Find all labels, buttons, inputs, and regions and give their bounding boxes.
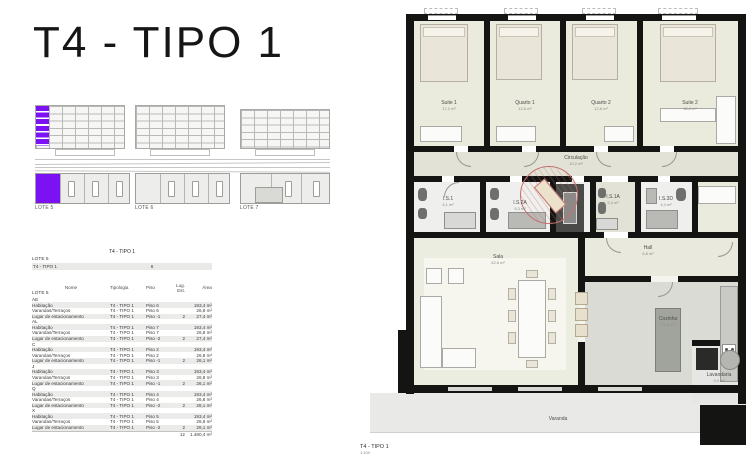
sink bbox=[418, 208, 427, 219]
table-cell: Habitação bbox=[32, 369, 110, 374]
table-cell: T4 - TIPO 1 bbox=[110, 353, 146, 358]
chair bbox=[526, 360, 538, 368]
revision-stamp-icon bbox=[520, 166, 578, 224]
table-cell: 27,4 m² bbox=[188, 336, 212, 341]
table-cell: T4 - TIPO 1 bbox=[110, 375, 146, 380]
chair bbox=[548, 310, 556, 322]
table-cell: T4 - TIPO 1 bbox=[110, 392, 146, 397]
table-cell: Lugar de estacionamento bbox=[32, 403, 110, 408]
wardrobe bbox=[420, 126, 462, 142]
cabinet bbox=[575, 324, 588, 337]
table-cell: 193,4 m² bbox=[188, 369, 212, 374]
table-cell: 193,4 m² bbox=[188, 347, 212, 352]
table-cell: 26,1 m² bbox=[188, 358, 212, 363]
table-cell: Piso 6 bbox=[146, 303, 168, 308]
window bbox=[508, 15, 536, 20]
shower bbox=[646, 210, 678, 229]
table-cell: Habitação bbox=[32, 325, 110, 330]
table-cell: T4 - TIPO 1 bbox=[110, 358, 146, 363]
table-cell: 193,4 m² bbox=[188, 392, 212, 397]
dining-table bbox=[518, 280, 546, 358]
col-header-lug-est: Lug. Est. bbox=[168, 283, 188, 293]
room-label-suite-1: Suite 117,2 m² bbox=[441, 100, 457, 111]
table-cell: T4 - TIPO 1 bbox=[110, 325, 146, 330]
table-cell: Q bbox=[32, 386, 110, 391]
bathtub bbox=[444, 212, 476, 229]
table-cell: T4 - TIPO 1 bbox=[110, 403, 146, 408]
plan-caption: T4 - TIPO 1 1:100 bbox=[360, 444, 389, 455]
toilet bbox=[418, 188, 427, 201]
table-cell: 2 bbox=[168, 336, 188, 341]
plan-scale: 1:100 bbox=[360, 450, 389, 455]
door-opening bbox=[442, 176, 454, 182]
table-cell: Piso -2 bbox=[146, 336, 168, 341]
floor-plan: Suite 117,2 m² Quarto 112,6 m² Quarto 21… bbox=[358, 8, 750, 454]
cabinet bbox=[575, 308, 588, 321]
table-cell: Habitação bbox=[32, 392, 110, 397]
highlighted-unit-column bbox=[36, 106, 49, 146]
balcony-floor bbox=[370, 393, 746, 433]
table-cell: 12 bbox=[168, 432, 188, 437]
table-cell: Varandas/Terraços bbox=[32, 397, 110, 402]
balcony-corner-block bbox=[700, 405, 746, 445]
wall-southwest-pier bbox=[398, 330, 414, 393]
table-cell: Piso 4 bbox=[146, 392, 168, 397]
col-header-tipologia: Tipologia bbox=[110, 285, 146, 290]
wardrobe bbox=[698, 186, 736, 204]
col-header-piso: Piso bbox=[146, 285, 168, 290]
area-table: T4 - TIPO 1 LOTE 5 T4 - TIPO 1 6 Nome Ti… bbox=[32, 249, 212, 438]
table-cell: Piso 3 bbox=[146, 375, 168, 380]
table-cell: Piso 2 bbox=[146, 353, 168, 358]
table-cell: X bbox=[32, 408, 110, 413]
chair bbox=[508, 332, 516, 344]
table-cell: Piso 7 bbox=[146, 330, 168, 335]
ground-floor-2 bbox=[150, 149, 210, 156]
pouf bbox=[426, 268, 442, 284]
table-cell: 2 bbox=[168, 314, 188, 319]
sink bbox=[598, 188, 606, 198]
table-cell: 193,4 m² bbox=[188, 414, 212, 419]
table-cell: Habitação bbox=[32, 347, 110, 352]
chair bbox=[526, 270, 538, 278]
table-cell: 26,8 m² bbox=[188, 308, 212, 313]
table-cell: T4 - TIPO 1 bbox=[110, 419, 146, 424]
area-table-rows: AEHabitaçãoT4 - TIPO 1Piso 6193,4 m²Vara… bbox=[32, 297, 212, 438]
wall-bedroom-divider bbox=[484, 21, 490, 146]
highlighted-unit bbox=[36, 174, 60, 203]
road-line bbox=[35, 167, 330, 168]
window bbox=[662, 15, 696, 20]
table-header-row: Nome Tipologia Piso Lug. Est. Área bbox=[32, 284, 212, 291]
table-cell: Habitação bbox=[32, 414, 110, 419]
bed bbox=[660, 24, 716, 82]
table-cell: 26,8 m² bbox=[188, 375, 212, 380]
table-cell: T4 - TIPO 1 bbox=[110, 347, 146, 352]
wall-bedroom-divider bbox=[560, 21, 566, 146]
table-cell: T4 - TIPO 1 bbox=[110, 303, 146, 308]
table-cell: T4 - TIPO 1 bbox=[110, 414, 146, 419]
road-line bbox=[35, 159, 330, 160]
chair bbox=[548, 332, 556, 344]
building-elevation-2 bbox=[135, 105, 225, 149]
table-cell: Lugar de estacionamento bbox=[32, 336, 110, 341]
toilet bbox=[598, 202, 606, 214]
window bbox=[428, 15, 456, 20]
door-opening bbox=[658, 176, 670, 182]
table-cell: 26,1 m² bbox=[188, 425, 212, 430]
room-label-is1a: I.S.1A2,4 m² bbox=[606, 194, 620, 205]
table-cell: Piso -1 bbox=[146, 314, 168, 319]
table-cell: Varandas/Terraços bbox=[32, 353, 110, 358]
table-cell: Lugar de estacionamento bbox=[32, 358, 110, 363]
table-cell: 193,4 m² bbox=[188, 303, 212, 308]
chair bbox=[508, 310, 516, 322]
area-row: Lugar de estacionamentoT4 - TIPO 1Piso -… bbox=[32, 425, 212, 431]
sliding-door bbox=[598, 387, 642, 391]
lot-plan-7 bbox=[240, 173, 330, 204]
page-title: T4 - TIPO 1 bbox=[33, 18, 284, 68]
wall-bath-divider bbox=[635, 182, 641, 232]
room-label-suite-2: Suite 218,4 m² bbox=[682, 100, 698, 111]
table-cell: T4 - TIPO 1 bbox=[110, 330, 146, 335]
room-label-quarto-2: Quarto 212,6 m² bbox=[591, 100, 610, 111]
table-cell: T4 - TIPO 1 bbox=[110, 336, 146, 341]
table-cell: Piso 6 bbox=[146, 308, 168, 313]
laundry-counter bbox=[696, 348, 718, 370]
table-cell: Varandas/Terraços bbox=[32, 419, 110, 424]
washing-machine-icon bbox=[720, 350, 740, 370]
table-cell: 26,8 m² bbox=[188, 397, 212, 402]
wall-bath-divider bbox=[480, 182, 486, 232]
room-label-quarto-1: Quarto 112,6 m² bbox=[515, 100, 534, 111]
table-cell: Lugar de estacionamento bbox=[32, 314, 110, 319]
lot-plan-6 bbox=[135, 173, 230, 204]
table-cell: Varandas/Terraços bbox=[32, 375, 110, 380]
building-elevation-3 bbox=[240, 109, 330, 149]
bed bbox=[420, 24, 468, 82]
table-cell: Habitação bbox=[32, 303, 110, 308]
sofa-chaise bbox=[442, 348, 476, 368]
shower bbox=[596, 218, 618, 230]
table-cell: T4 - TIPO 1 bbox=[110, 425, 146, 430]
lot-label-7: LOTE 7 bbox=[240, 205, 258, 211]
sliding-door bbox=[518, 387, 562, 391]
table-cell: Piso -2 bbox=[146, 425, 168, 430]
col-header-area: Área bbox=[188, 285, 212, 290]
chair bbox=[508, 288, 516, 300]
wall-living-kitchen bbox=[578, 238, 585, 294]
table-cell: 27,4 m² bbox=[188, 314, 212, 319]
table-cell: AL bbox=[32, 319, 110, 324]
ground-floor-1 bbox=[55, 149, 115, 156]
table-cell: Varandas/Terraços bbox=[32, 330, 110, 335]
table-cell: 2 bbox=[168, 425, 188, 430]
door-opening bbox=[510, 176, 522, 182]
table-cell: Piso -2 bbox=[146, 403, 168, 408]
summary-count: 6 bbox=[142, 264, 162, 269]
room-label-is3d: I.S.3D4,4 m² bbox=[659, 196, 673, 207]
sink bbox=[490, 208, 499, 220]
pouf bbox=[448, 268, 464, 284]
table-cell: Piso 2 bbox=[146, 347, 168, 352]
toilet bbox=[676, 188, 686, 201]
table-cell: Piso 3 bbox=[146, 369, 168, 374]
table-cell: 2 bbox=[168, 381, 188, 386]
corridor-opening bbox=[602, 176, 628, 182]
road-line bbox=[35, 162, 330, 165]
table-cell: J bbox=[32, 364, 110, 369]
room-label-is1: I.S.14,1 m² bbox=[442, 196, 453, 207]
lot-plan-5 bbox=[35, 173, 130, 204]
table-cell: T4 - TIPO 1 bbox=[110, 369, 146, 374]
table-cell: 2 bbox=[168, 403, 188, 408]
table-cell: AE bbox=[32, 297, 110, 302]
table-cell: Piso 4 bbox=[146, 397, 168, 402]
table-cell: 193,4 m² bbox=[188, 325, 212, 330]
table-cell: Varandas/Terraços bbox=[32, 308, 110, 313]
room-label-hall: Hall6,8 m² bbox=[642, 245, 653, 256]
bed bbox=[496, 24, 542, 80]
wall-east-laundry bbox=[738, 340, 746, 404]
table-cell: Piso 5 bbox=[146, 419, 168, 424]
table-cell: Lugar de estacionamento bbox=[32, 381, 110, 386]
lot-label-5: LOTE 5 bbox=[35, 205, 53, 211]
room-label-circulacao: Circulação10,2 m² bbox=[564, 155, 588, 166]
window bbox=[586, 15, 614, 20]
table-cell: Lugar de estacionamento bbox=[32, 425, 110, 430]
table-cell: 26,8 m² bbox=[188, 419, 212, 424]
lot-label-6: LOTE 6 bbox=[135, 205, 153, 211]
cabinet bbox=[575, 292, 588, 305]
wardrobe bbox=[716, 96, 736, 144]
table-cell: Piso 5 bbox=[146, 414, 168, 419]
chair bbox=[548, 288, 556, 300]
summary-row: T4 - TIPO 1 6 bbox=[32, 263, 212, 270]
table-cell: 2 bbox=[168, 358, 188, 363]
table-cell: T4 - TIPO 1 bbox=[110, 308, 146, 313]
wall-hall-kitchen bbox=[585, 276, 651, 282]
table-cell: Piso -1 bbox=[146, 358, 168, 363]
wall-hall-kitchen bbox=[678, 276, 738, 282]
table-cell: 26,1 m² bbox=[188, 381, 212, 386]
wardrobe bbox=[604, 126, 634, 142]
sliding-door bbox=[448, 387, 492, 391]
table-cell: T4 - TIPO 1 bbox=[110, 397, 146, 402]
table-cell: 26,8 m² bbox=[188, 353, 212, 358]
room-label-lavandaria: Lavandaria3,9 m² bbox=[707, 372, 732, 383]
room-label-is2a: I.S.2A5,3 m² bbox=[513, 200, 527, 211]
room-label-sala: Sala52,6 m² bbox=[491, 254, 505, 265]
room-label-varanda: Varanda bbox=[549, 416, 568, 422]
table-cell: C bbox=[32, 342, 110, 347]
sink bbox=[646, 188, 657, 204]
wall-bathrooms-south bbox=[414, 232, 738, 238]
table-total-row: 121.480,4 m² bbox=[32, 431, 212, 438]
bed bbox=[572, 24, 618, 80]
toilet bbox=[490, 188, 499, 200]
table-cell: Piso 7 bbox=[146, 325, 168, 330]
table-cell: 26,8 m² bbox=[188, 330, 212, 335]
wall-east bbox=[738, 14, 746, 340]
wall-bedroom-divider bbox=[637, 21, 643, 146]
table-cell: 1.480,4 m² bbox=[188, 432, 212, 437]
table-cell: Piso -1 bbox=[146, 381, 168, 386]
table-cell: T4 - TIPO 1 bbox=[110, 381, 146, 386]
sofa bbox=[420, 296, 442, 368]
summary-type: T4 - TIPO 1 bbox=[32, 264, 142, 269]
room-label-cozinha: Cozinha17,8 m² bbox=[659, 316, 677, 327]
wardrobe bbox=[496, 126, 536, 142]
col-header-nome: Nome bbox=[32, 285, 110, 290]
wall-living-kitchen bbox=[578, 342, 585, 385]
table-title: T4 - TIPO 1 bbox=[32, 249, 212, 255]
table-cell: T4 - TIPO 1 bbox=[110, 314, 146, 319]
ground-floor-3 bbox=[255, 149, 315, 156]
table-lot-label: LOTE 5 bbox=[32, 257, 212, 262]
table-cell: 26,1 m² bbox=[188, 403, 212, 408]
